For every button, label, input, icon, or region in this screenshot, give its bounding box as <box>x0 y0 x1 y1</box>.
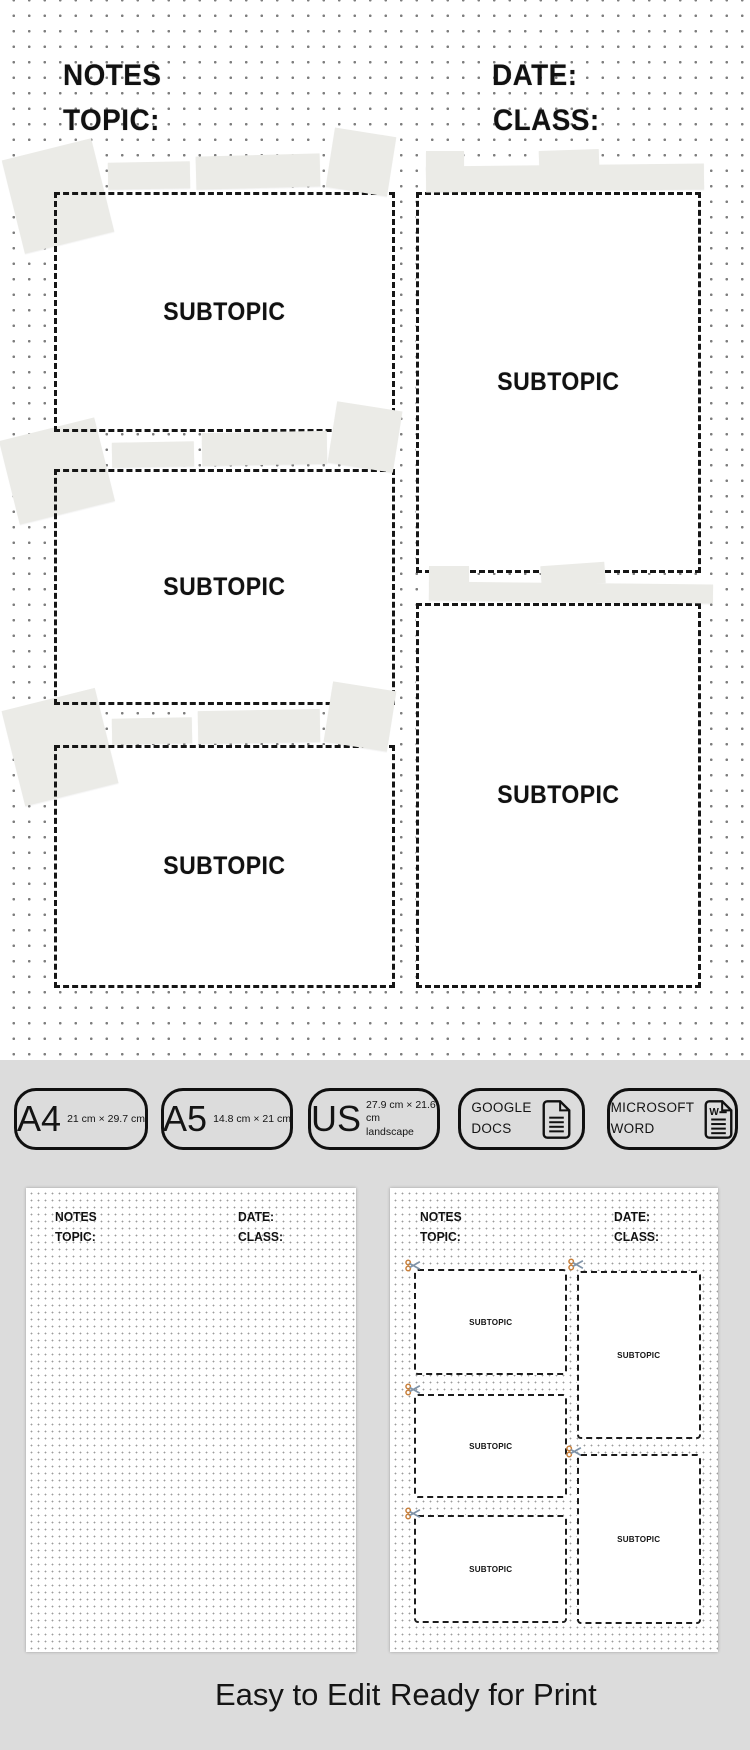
badge-a5: A5 14.8 cm × 21 cm <box>161 1088 293 1150</box>
badge-microsoft-word-line2: WORD <box>611 1119 695 1140</box>
tape-piece <box>108 161 190 189</box>
thumb-topic-heading: TOPIC: <box>55 1230 96 1243</box>
badge-a5-size: A5 <box>163 1101 207 1137</box>
thumb-class-heading: CLASS: <box>238 1230 283 1243</box>
mini-subtopic-label: SUBTOPIC <box>469 1317 512 1327</box>
badge-us-dimensions-line: 27.9 cm × 21.6 cm <box>366 1099 437 1125</box>
mini-subtopic-label: SUBTOPIC <box>617 1534 660 1544</box>
class-heading: CLASS: <box>493 106 600 136</box>
thumb-notes-heading: NOTES <box>420 1210 462 1223</box>
thumb-date-heading: DATE: <box>238 1210 274 1223</box>
subtopic-label: SUBTOPIC <box>163 852 285 881</box>
badge-microsoft-word-label: MICROSOFT WORD <box>611 1098 695 1140</box>
mini-subtopic-box: SUBTOPIC <box>414 1515 567 1623</box>
thumbnail-blank-template: NOTES TOPIC: DATE: CLASS: <box>26 1188 356 1652</box>
subtopic-label: SUBTOPIC <box>163 298 285 327</box>
topic-heading: TOPIC: <box>63 106 160 136</box>
tape-piece <box>198 709 321 744</box>
badge-google-docs-label: GOOGLE DOCS <box>471 1098 531 1140</box>
product-preview-image: { "page": { "header": { "notes": "NOTES"… <box>0 0 750 1750</box>
scissors-icon <box>566 1445 583 1458</box>
badge-a4-size: A4 <box>17 1101 61 1137</box>
thumb-date-heading: DATE: <box>614 1210 650 1223</box>
document-icon <box>541 1099 572 1140</box>
scissors-icon <box>405 1383 422 1396</box>
tape-piece <box>202 431 328 466</box>
thumb-notes-heading: NOTES <box>55 1210 97 1223</box>
mini-subtopic-box: SUBTOPIC <box>577 1271 701 1439</box>
tape-piece <box>324 681 397 751</box>
word-document-icon: W <box>703 1099 734 1140</box>
badge-google-docs: GOOGLE DOCS <box>458 1088 585 1150</box>
mini-subtopic-box: SUBTOPIC <box>414 1269 567 1375</box>
svg-text:W: W <box>710 1106 720 1117</box>
caption-easy-to-edit: Easy to Edit <box>215 1678 380 1712</box>
subtopic-box: SUBTOPIC <box>54 745 395 988</box>
tape-piece <box>196 153 321 189</box>
thumb-topic-heading: TOPIC: <box>420 1230 461 1243</box>
mini-subtopic-label: SUBTOPIC <box>617 1350 660 1360</box>
badge-a4-dimensions: 21 cm × 29.7 cm <box>67 1113 145 1125</box>
notes-heading: NOTES <box>63 61 161 91</box>
tape-piece <box>328 401 403 473</box>
subtopic-box: SUBTOPIC <box>416 192 701 573</box>
badge-a4: A4 21 cm × 29.7 cm <box>14 1088 148 1150</box>
subtopic-box: SUBTOPIC <box>54 192 395 432</box>
badge-us-size: US <box>311 1101 361 1137</box>
scissors-icon <box>568 1258 585 1271</box>
badge-us-letter: US 27.9 cm × 21.6 cm landscape <box>308 1088 440 1150</box>
badge-us-dimensions: 27.9 cm × 21.6 cm landscape <box>366 1099 437 1138</box>
badge-google-docs-line1: GOOGLE <box>471 1098 531 1119</box>
tape-piece <box>112 717 192 744</box>
mini-subtopic-label: SUBTOPIC <box>469 1441 512 1451</box>
badge-a5-dimensions: 14.8 cm × 21 cm <box>213 1113 291 1125</box>
mini-subtopic-box: SUBTOPIC <box>414 1394 567 1498</box>
badge-us-orientation: landscape <box>366 1126 437 1139</box>
thumbnail-filled-template: NOTES TOPIC: DATE: CLASS: SUBTOPIC SUBTO… <box>390 1188 718 1652</box>
subtopic-label: SUBTOPIC <box>163 573 285 602</box>
badge-microsoft-word: MICROSOFT WORD W <box>607 1088 738 1150</box>
badge-microsoft-word-line1: MICROSOFT <box>611 1098 695 1119</box>
subtopic-label: SUBTOPIC <box>497 368 619 397</box>
badge-google-docs-line2: DOCS <box>471 1119 531 1140</box>
subtopic-box: SUBTOPIC <box>416 603 701 988</box>
tape-piece <box>112 441 194 467</box>
caption-ready-for-print: Ready for Print <box>390 1678 597 1712</box>
subtopic-label: SUBTOPIC <box>497 781 619 810</box>
date-heading: DATE: <box>492 61 578 91</box>
tape-piece <box>429 582 713 604</box>
notes-template-page: NOTES TOPIC: DATE: CLASS: SUBTOPIC SUBTO… <box>0 0 750 1060</box>
mini-subtopic-label: SUBTOPIC <box>469 1564 512 1574</box>
subtopic-box: SUBTOPIC <box>54 469 395 705</box>
tape-piece <box>326 128 397 197</box>
tape-piece <box>426 164 704 193</box>
scissors-icon <box>405 1259 422 1272</box>
thumb-class-heading: CLASS: <box>614 1230 659 1243</box>
mini-subtopic-box: SUBTOPIC <box>577 1454 701 1624</box>
scissors-icon <box>405 1507 422 1520</box>
